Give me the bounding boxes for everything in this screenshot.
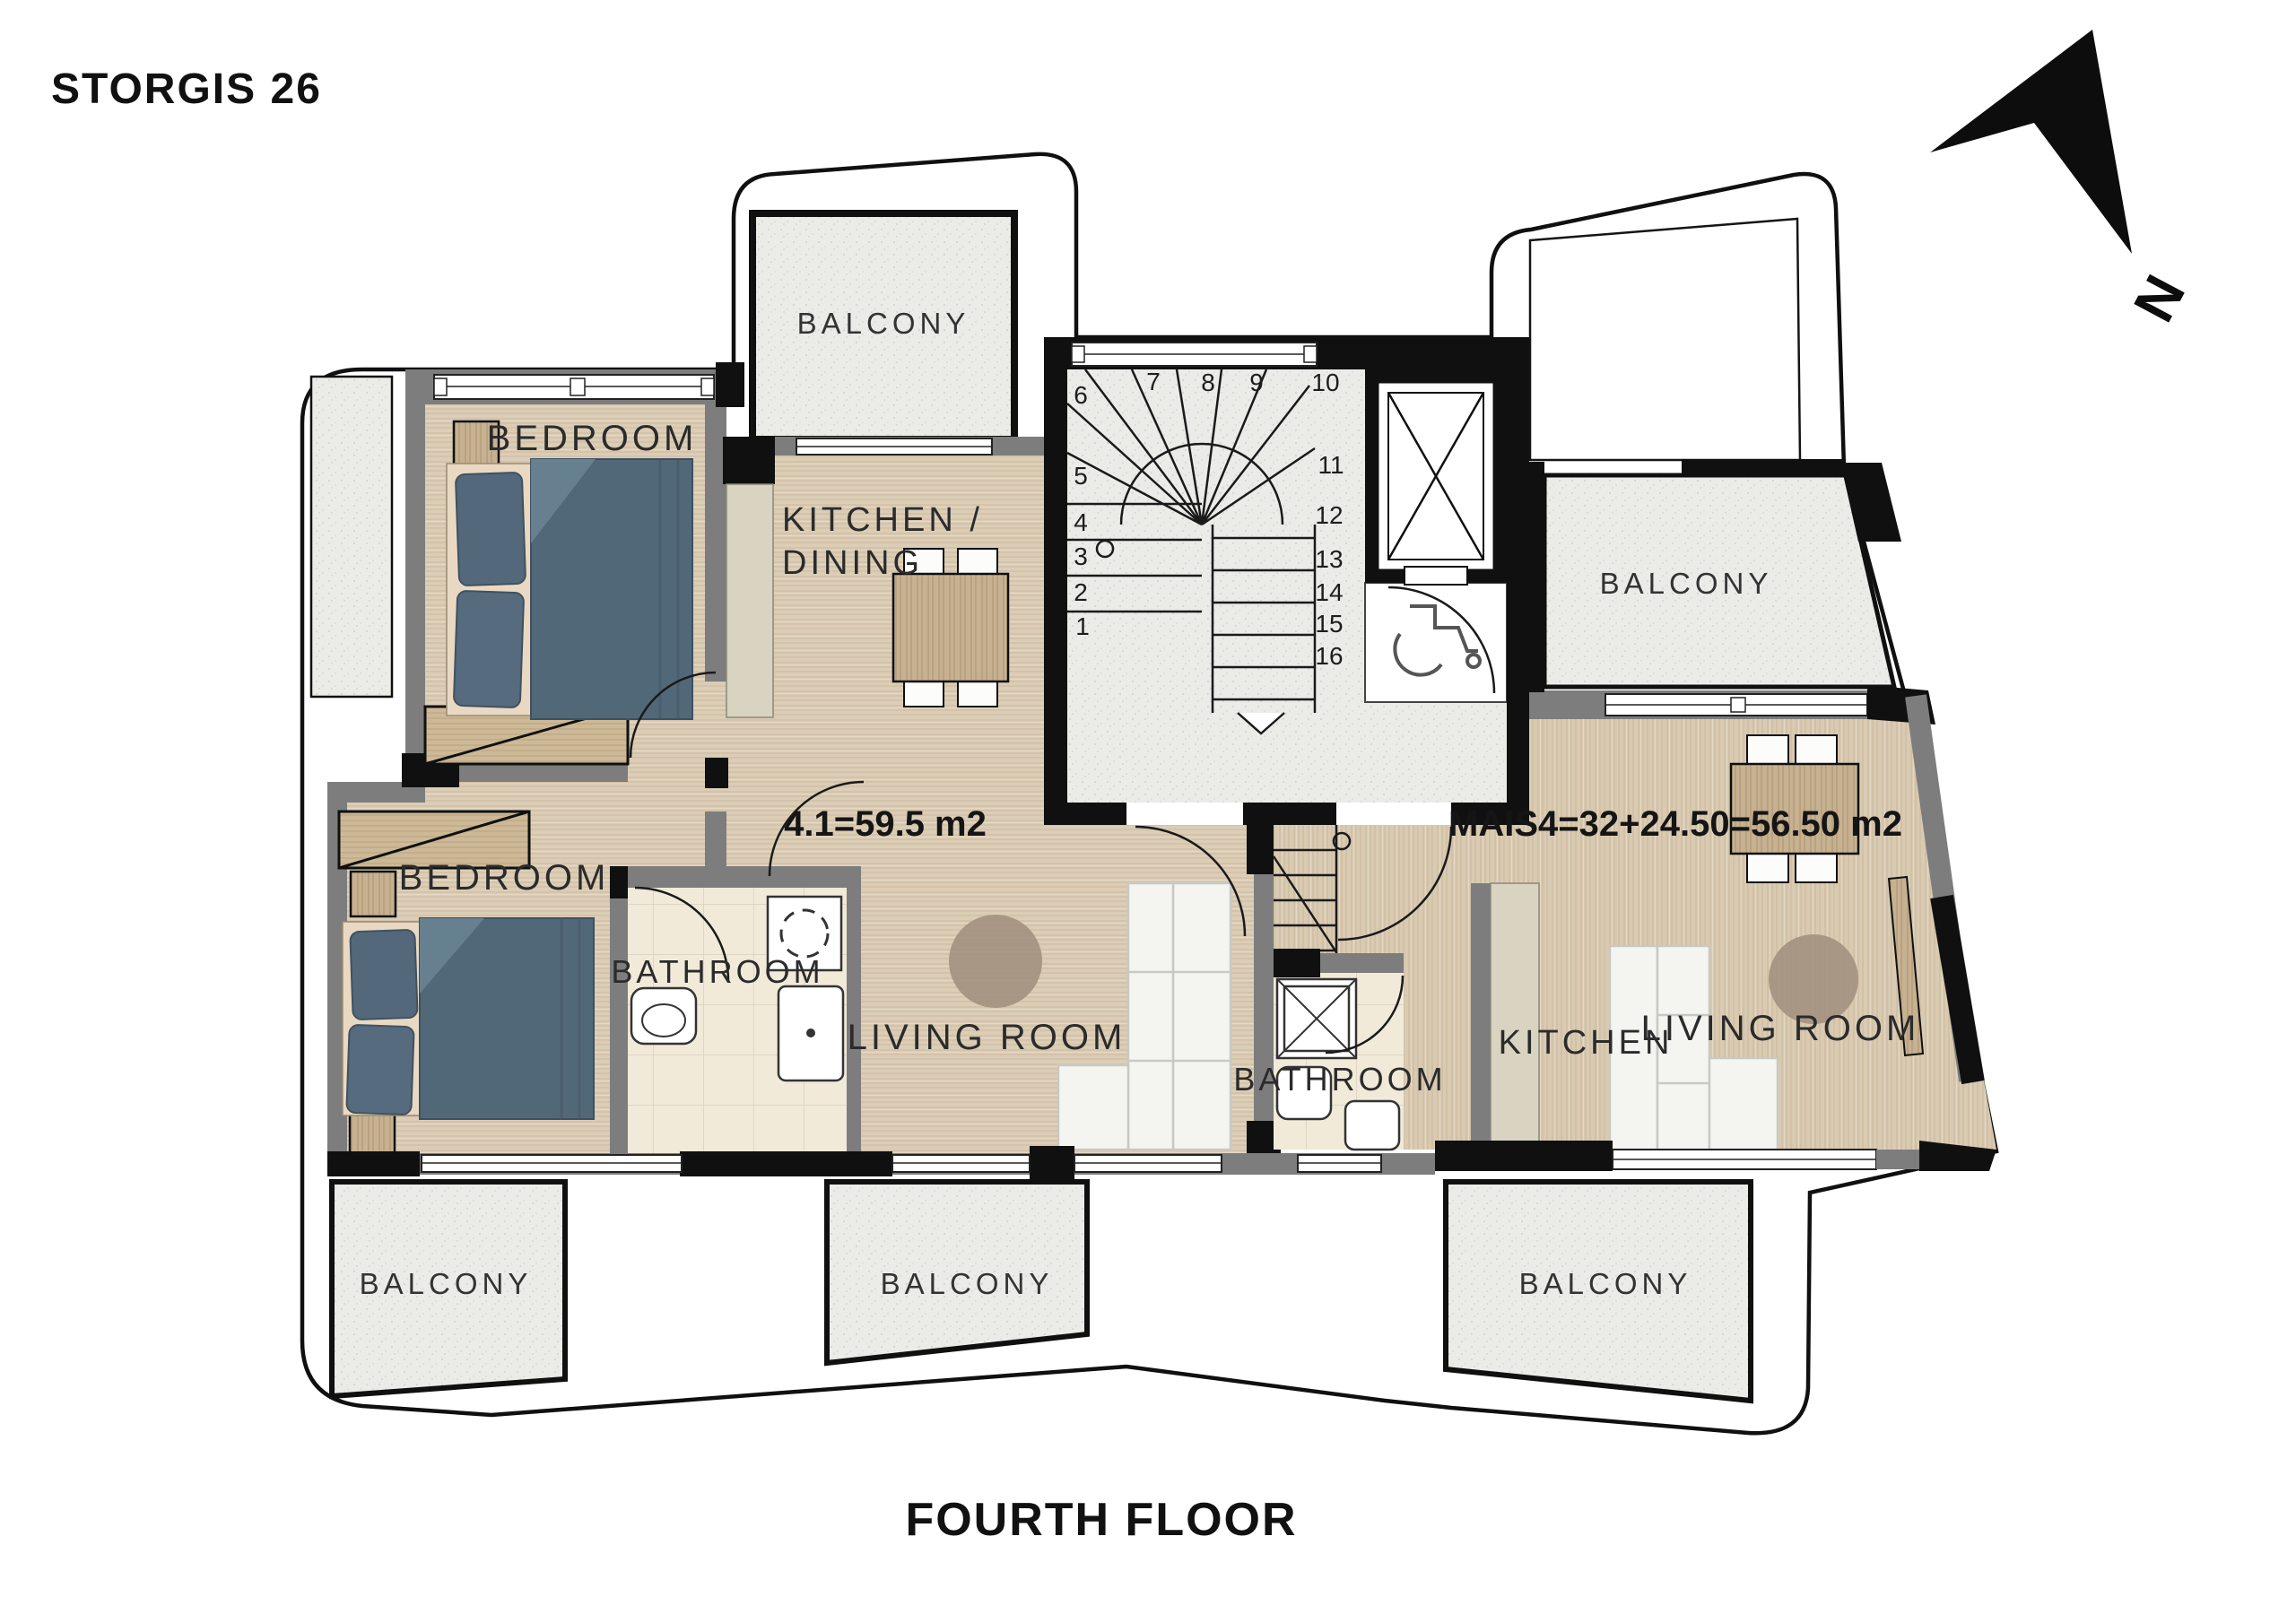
step-9: 9: [1249, 369, 1264, 396]
balcony-bottom-right: BALCONY: [1446, 1182, 1751, 1401]
step-16: 16: [1315, 642, 1343, 670]
balcony-top-left-label: BALCONY: [797, 307, 970, 340]
right-unit-north-window: [1605, 694, 1867, 716]
chair: [1747, 854, 1788, 882]
accessible-wc-room: [1365, 583, 1507, 702]
stair-core: 1 2 3 4 5 6 7 8 9 10 11 12 13 14 15 16: [1044, 337, 1529, 825]
chair: [1796, 735, 1837, 764]
kitchen-window: [796, 438, 992, 455]
kitchen-counter-right: [1491, 883, 1539, 1146]
step-15: 15: [1315, 610, 1343, 638]
step-6: 6: [1074, 381, 1088, 409]
step-3: 3: [1074, 542, 1088, 570]
pillow: [346, 1025, 413, 1115]
terrace-inner-outline: [1530, 219, 1800, 460]
balcony-bottom-center-label: BALCONY: [881, 1267, 1054, 1300]
step-10: 10: [1311, 369, 1339, 396]
chair: [1796, 854, 1837, 882]
balcony-bottom-right-label: BALCONY: [1519, 1267, 1692, 1300]
step-11: 11: [1318, 451, 1344, 479]
floor-plan-drawing: BALCONY BALCONY BALCONY BALCONY BALCONY: [0, 0, 2296, 1623]
bathroom-2-label: BATHROOM: [1233, 1061, 1446, 1098]
right-unit-area-label: MAIS4=32+24.50=56.50 m2: [1448, 804, 1902, 844]
north-label: N: [2121, 265, 2197, 332]
chair: [1747, 735, 1788, 764]
pillow: [350, 930, 417, 1020]
floor-title: FOURTH FLOOR: [905, 1494, 1297, 1546]
nightstand: [350, 1112, 395, 1157]
elevator-door: [1405, 567, 1467, 585]
living-room-right-label: LIVING ROOM: [1641, 1009, 1920, 1048]
balcony-top-left: BALCONY: [752, 213, 1014, 439]
pillow: [454, 591, 524, 708]
step-13: 13: [1315, 545, 1343, 573]
bathroom1: [628, 888, 847, 1153]
balcony-bottom-left-label: BALCONY: [360, 1267, 533, 1300]
floor-plan-page: BALCONY BALCONY BALCONY BALCONY BALCONY: [0, 0, 2296, 1623]
step-5: 5: [1074, 462, 1088, 490]
step-14: 14: [1315, 578, 1343, 606]
balcony-top-right: BALCONY: [1544, 459, 1901, 687]
elevator: [1365, 369, 1507, 585]
balcony-bottom-left: BALCONY: [332, 1182, 565, 1396]
rug-left: [949, 915, 1042, 1008]
kitchen-dining-label-line1: KITCHEN /: [782, 501, 983, 539]
bedroom-2-label: BEDROOM: [399, 858, 610, 898]
bathroom-1-label: BATHROOM: [611, 953, 823, 990]
step-4: 4: [1074, 508, 1088, 536]
north-arrow-icon: N: [1930, 30, 2197, 332]
kitchen-counter: [726, 484, 773, 717]
bed-bedroom1: [447, 421, 692, 719]
nightstand: [351, 872, 396, 916]
west-side-ledge: [311, 377, 392, 697]
kitchen-dining-label-line2: DINING: [782, 544, 923, 582]
step-7: 7: [1146, 368, 1161, 395]
toilet: [631, 988, 696, 1044]
stairwell-window: [1072, 343, 1317, 366]
step-8: 8: [1201, 369, 1215, 396]
balcony-bottom-center: BALCONY: [827, 1182, 1087, 1363]
left-unit-area-label: 4.1=59.5 m2: [784, 804, 987, 844]
page-title: STORGIS 26: [51, 65, 322, 113]
bedroom1-window: [434, 375, 714, 399]
balcony-top-right-label: BALCONY: [1600, 567, 1773, 600]
bedroom-1-label: BEDROOM: [487, 419, 698, 458]
bathroom2: [1274, 949, 1404, 1150]
step-1: 1: [1075, 612, 1090, 640]
step-12: 12: [1315, 501, 1343, 529]
pillow: [456, 473, 526, 586]
living-room-left-label: LIVING ROOM: [848, 1018, 1126, 1057]
step-2: 2: [1074, 578, 1088, 606]
toilet: [1345, 1101, 1399, 1150]
